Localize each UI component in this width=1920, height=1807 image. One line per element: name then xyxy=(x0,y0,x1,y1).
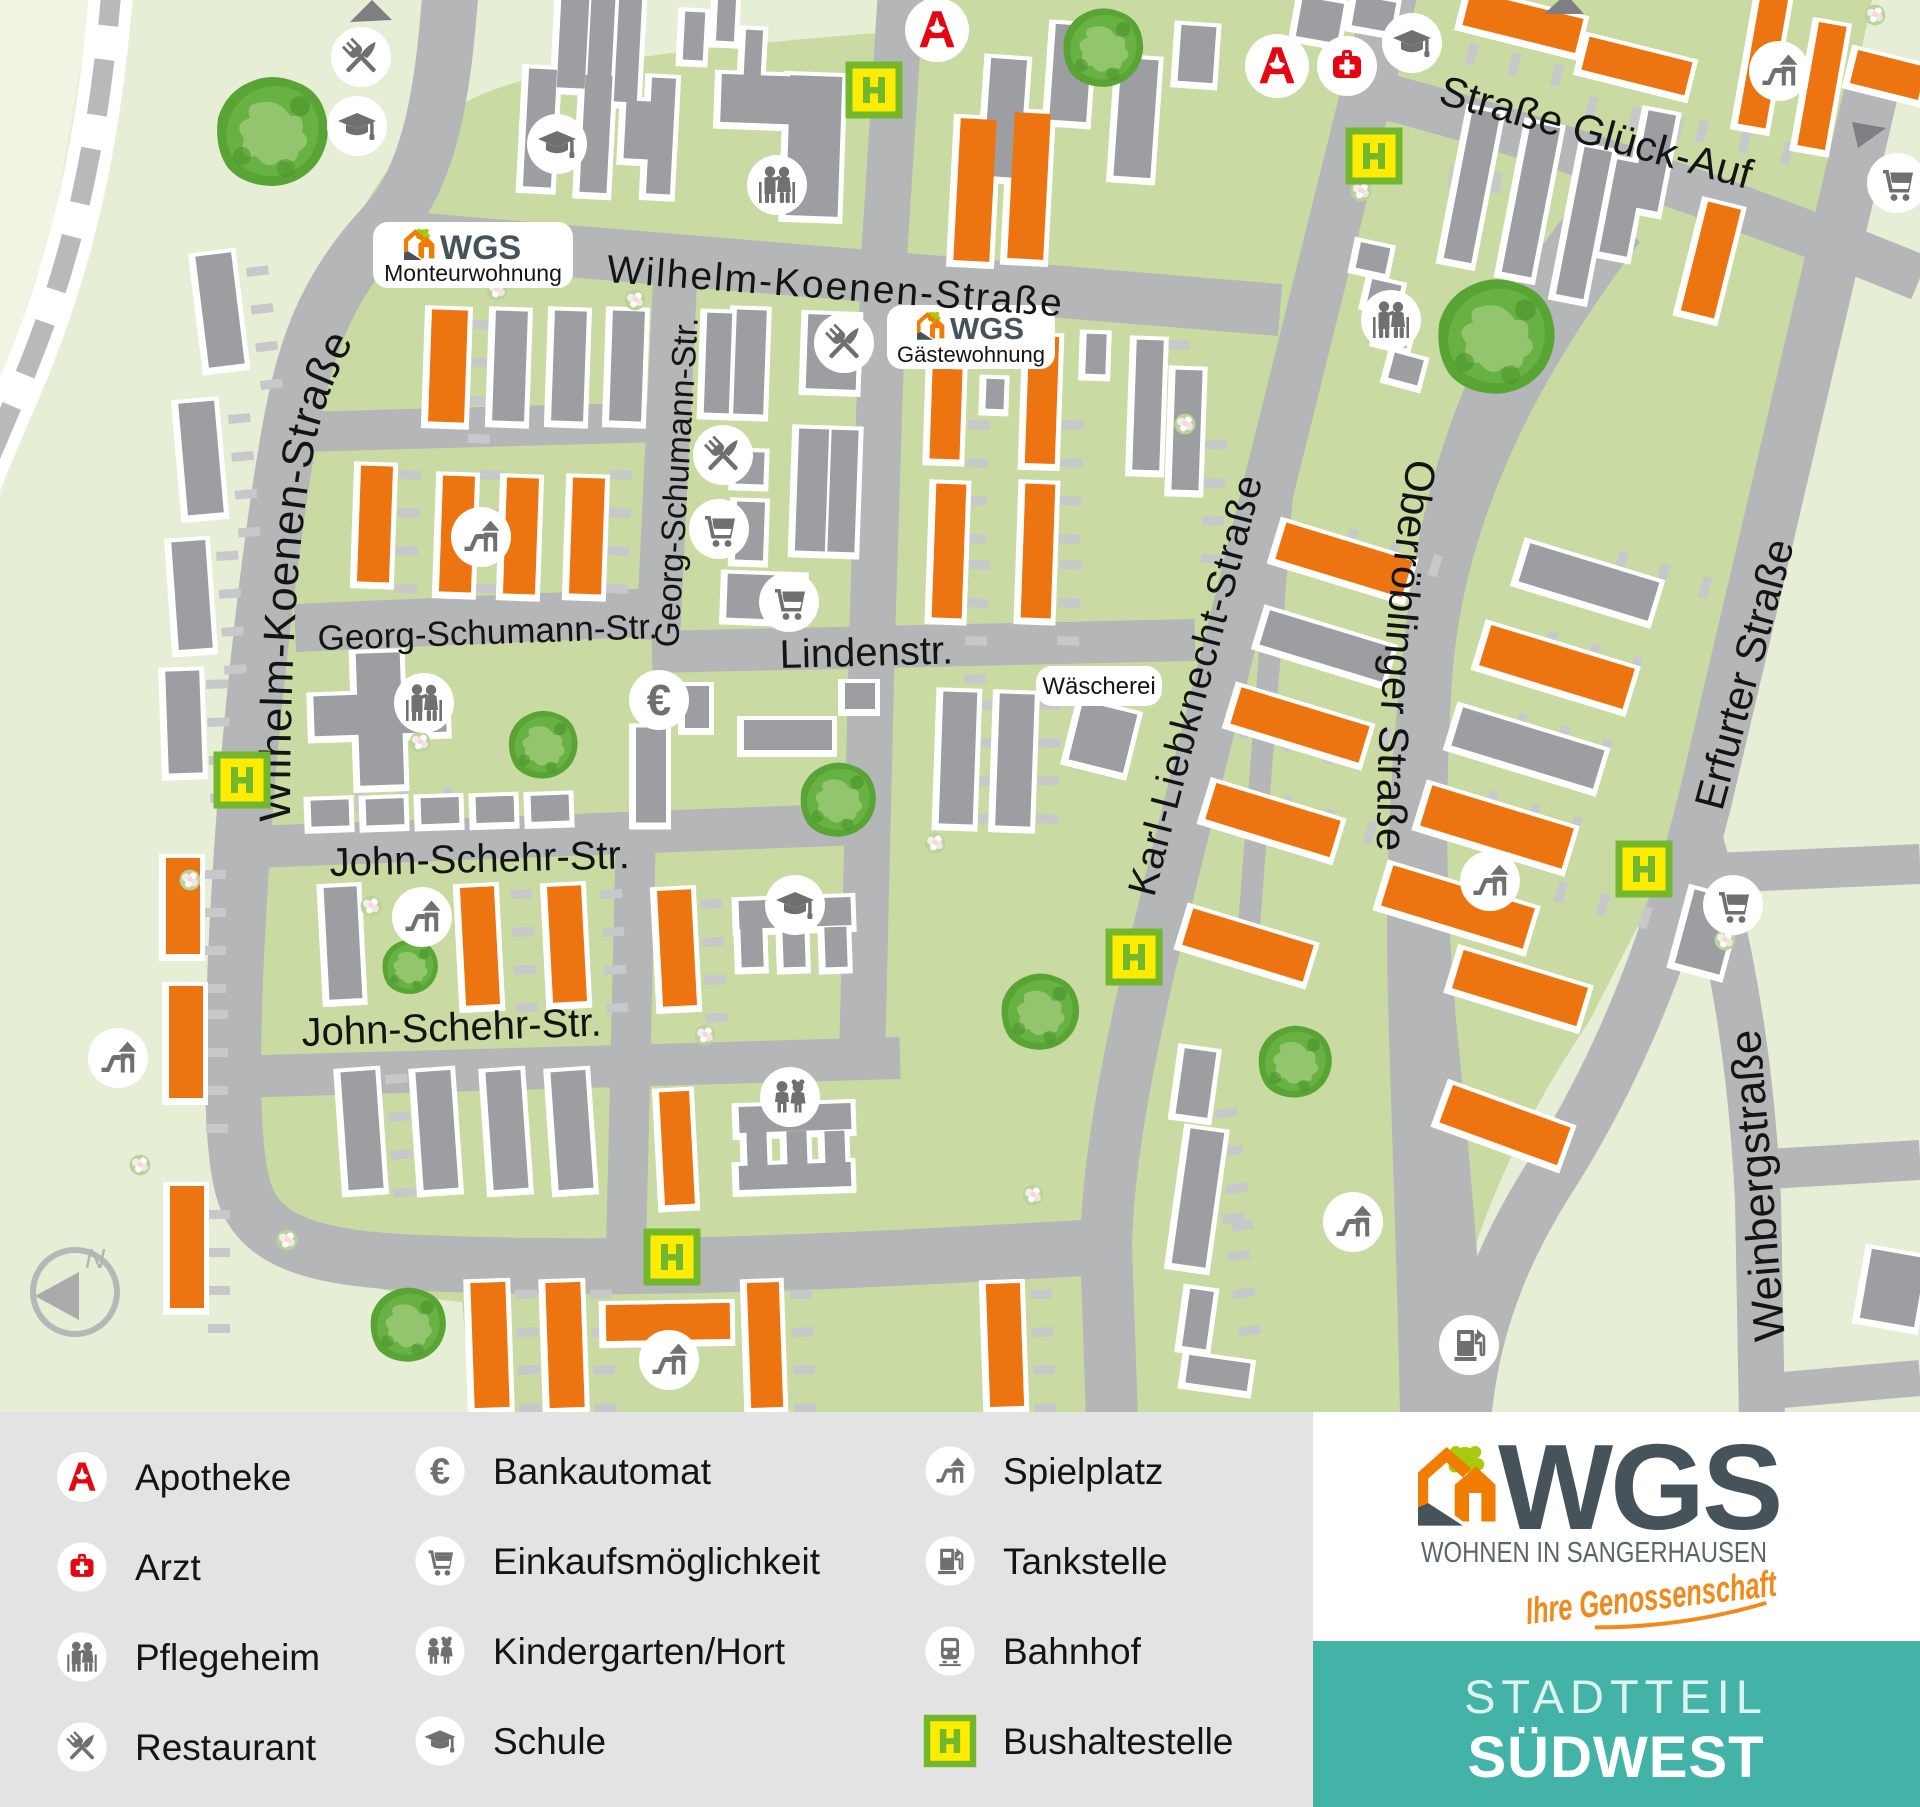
svg-text:Arzt: Arzt xyxy=(135,1547,202,1588)
svg-text:John-Schehr-Str.: John-Schehr-Str. xyxy=(329,833,630,885)
svg-text:Pflegeheim: Pflegeheim xyxy=(135,1637,320,1678)
svg-text:Tankstelle: Tankstelle xyxy=(1003,1541,1168,1582)
svg-text:Bahnhof: Bahnhof xyxy=(1003,1631,1142,1672)
svg-text:Wäscherei: Wäscherei xyxy=(1042,673,1155,700)
svg-text:Restaurant: Restaurant xyxy=(135,1727,317,1768)
svg-text:Spielplatz: Spielplatz xyxy=(1003,1451,1163,1492)
svg-text:SÜDWEST: SÜDWEST xyxy=(1468,1725,1765,1790)
svg-text:WOHNEN IN SANGERHAUSEN: WOHNEN IN SANGERHAUSEN xyxy=(1421,1537,1767,1569)
svg-text:Einkaufsmöglichkeit: Einkaufsmöglichkeit xyxy=(493,1541,821,1582)
svg-text:Monteurwohnung: Monteurwohnung xyxy=(384,260,562,286)
svg-text:Lindenstr.: Lindenstr. xyxy=(779,628,954,677)
svg-text:Kindergarten/Hort: Kindergarten/Hort xyxy=(493,1631,786,1672)
svg-text:STADTTEIL: STADTTEIL xyxy=(1464,1670,1768,1723)
svg-text:N: N xyxy=(85,1243,106,1274)
svg-text:Bankautomat: Bankautomat xyxy=(493,1451,712,1492)
svg-text:Schule: Schule xyxy=(493,1721,606,1762)
svg-text:Apotheke: Apotheke xyxy=(135,1457,291,1498)
svg-text:Gästewohnung: Gästewohnung xyxy=(897,342,1045,367)
svg-text:WGS: WGS xyxy=(1498,1419,1780,1555)
svg-text:Bushaltestelle: Bushaltestelle xyxy=(1003,1721,1233,1762)
